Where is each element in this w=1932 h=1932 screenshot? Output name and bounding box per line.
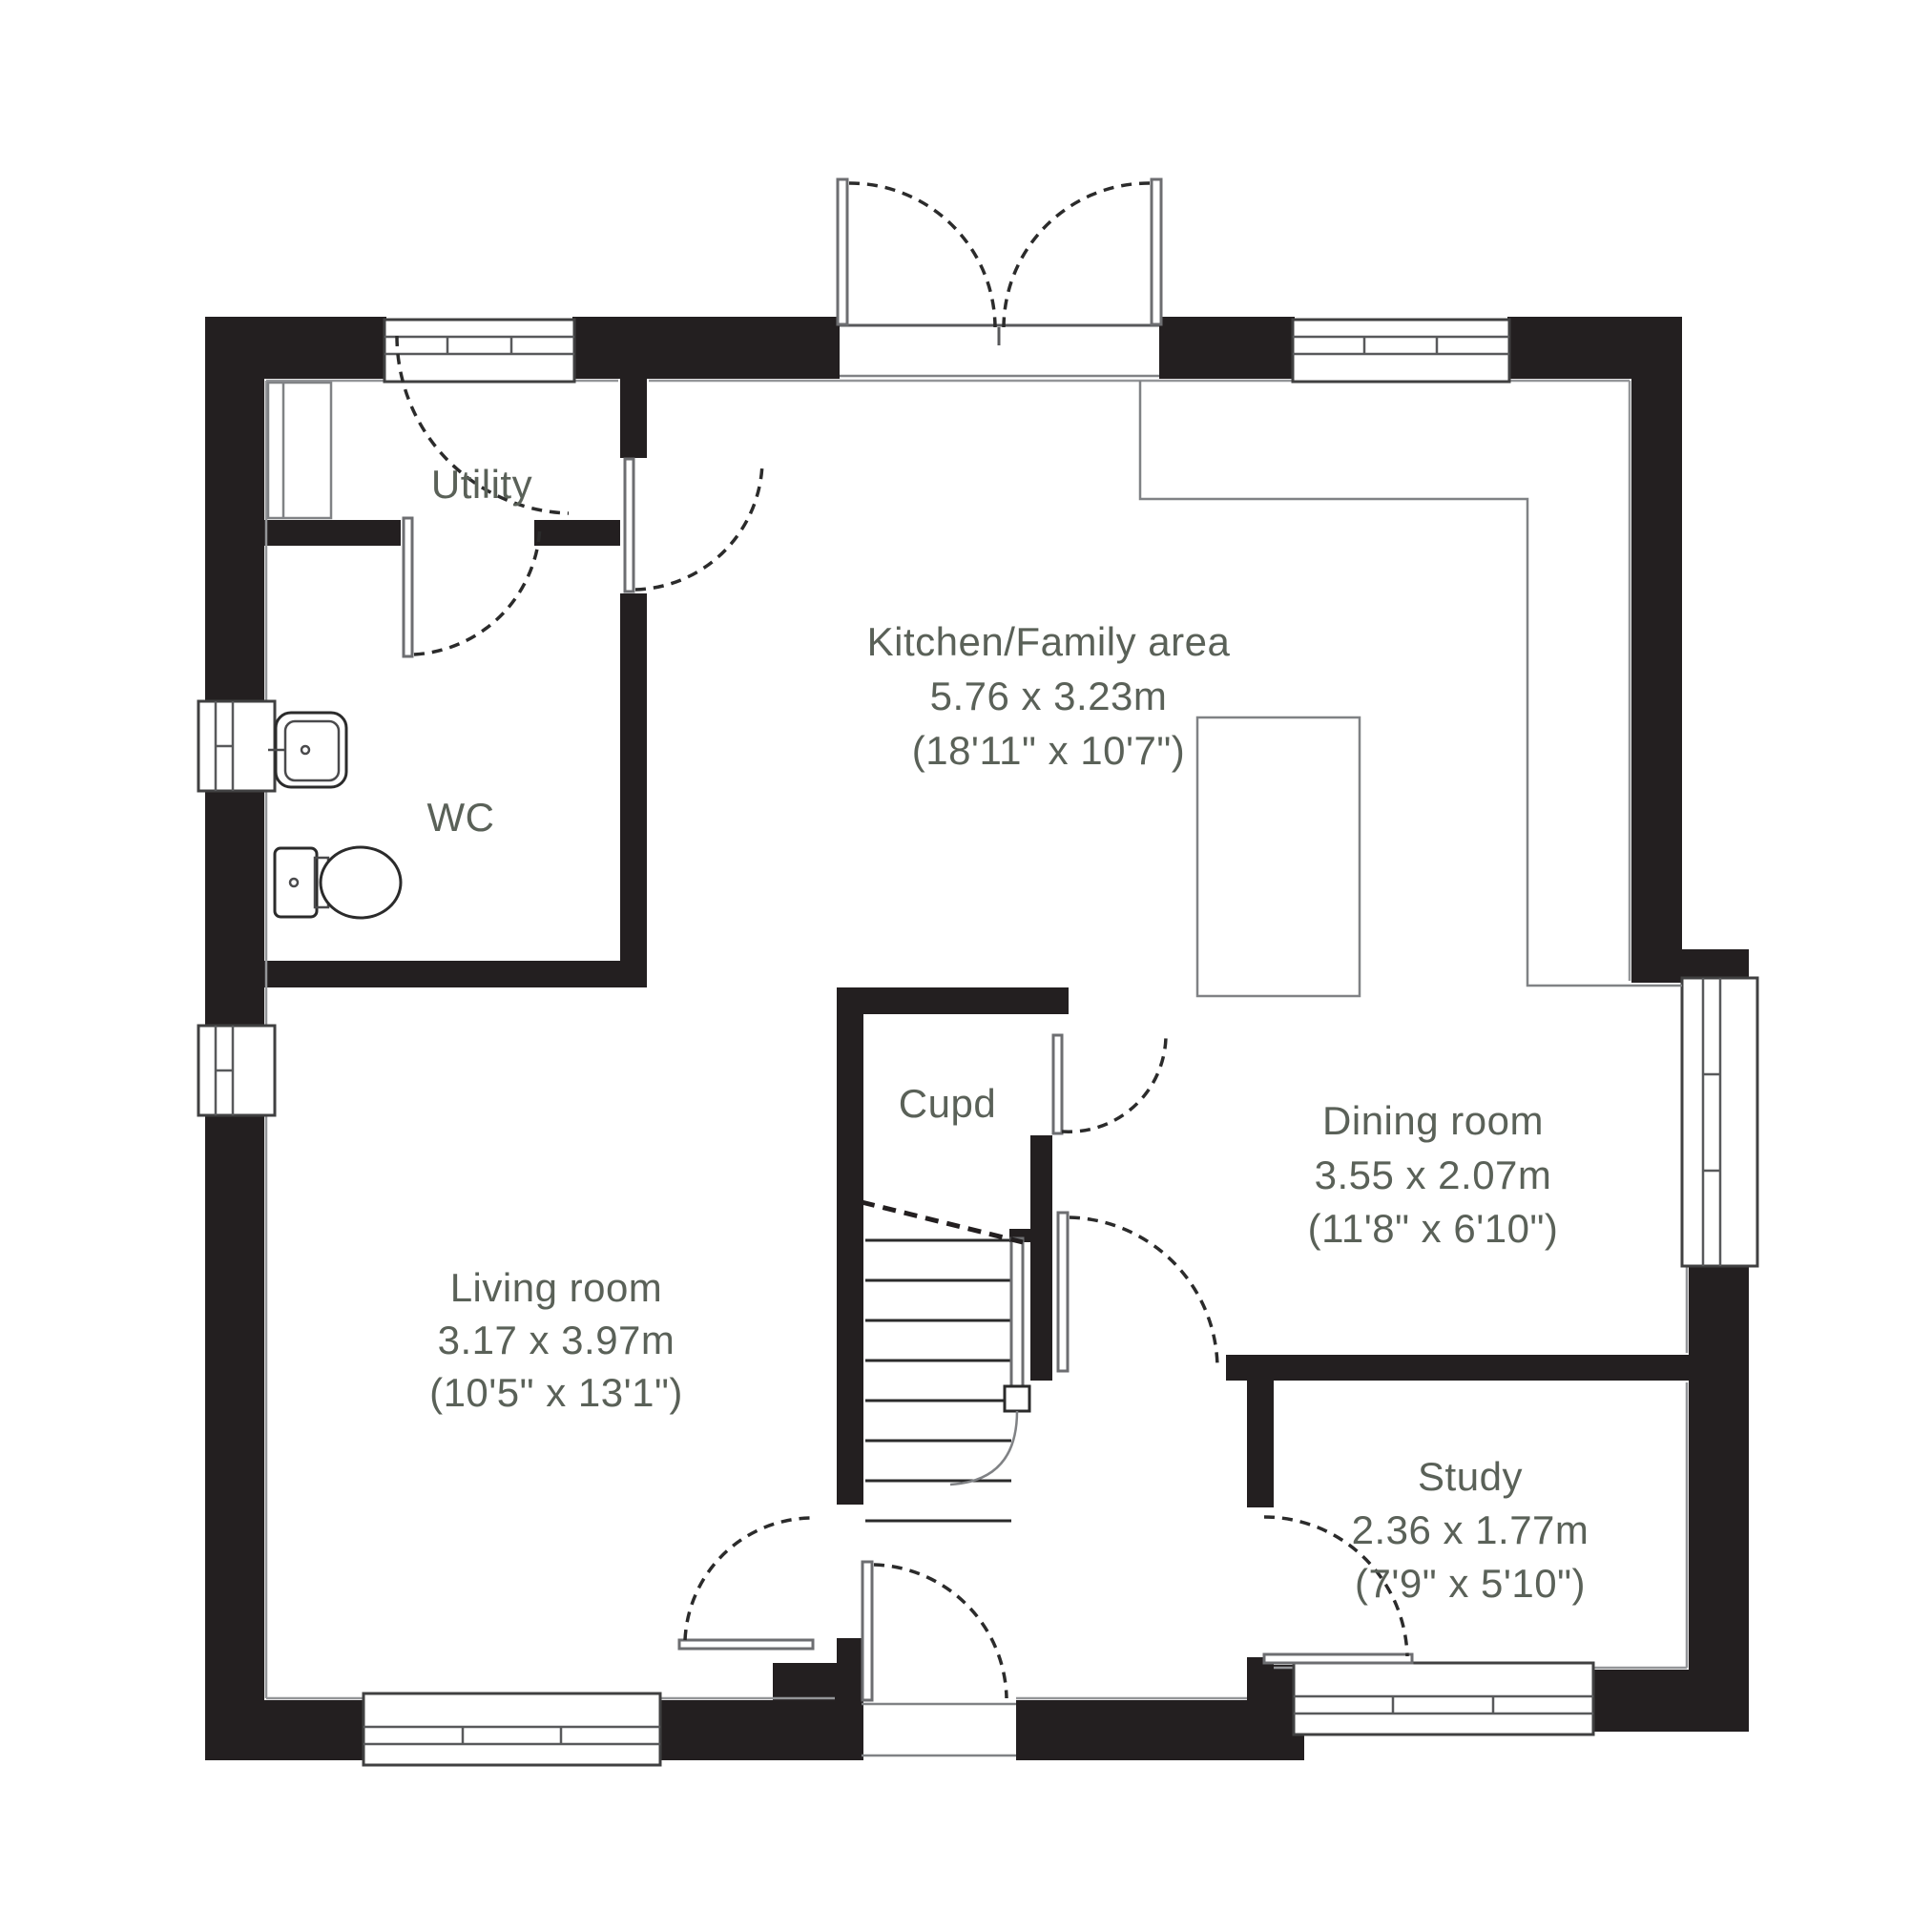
wc-basin [268, 713, 346, 787]
cupboard-door [1053, 1035, 1166, 1133]
living-room-door [679, 1518, 813, 1649]
window-kitchen-top [1293, 320, 1509, 382]
wc-door [404, 518, 540, 656]
interior-walls [205, 379, 1689, 1760]
dining-door [1058, 1213, 1217, 1371]
cupboard-label: Cupd [899, 1081, 996, 1126]
inner-wall-lines [266, 381, 1687, 1698]
window-dining-right [1682, 978, 1757, 1266]
window-living-left [198, 1026, 275, 1115]
window-living-bottom [364, 1693, 660, 1765]
utility-label: Utility [431, 462, 532, 507]
kitchen-dim-metric: 5.76 x 3.23m [930, 674, 1168, 718]
french-doors-kitchen [838, 179, 1161, 376]
kitchen-dim-imperial: (18'11" x 10'7") [912, 728, 1186, 773]
dining-label: Dining room [1322, 1098, 1544, 1143]
study-dim-imperial: (7'9" x 5'10") [1355, 1561, 1586, 1606]
window-wc-left [198, 701, 275, 791]
dining-dim-metric: 3.55 x 2.07m [1315, 1153, 1552, 1197]
window-utility-top [384, 320, 574, 382]
study-label: Study [1418, 1454, 1523, 1499]
window-study-bottom [1294, 1663, 1593, 1735]
wc-toilet [275, 847, 401, 918]
dining-dim-imperial: (11'8" x 6'10") [1308, 1206, 1559, 1251]
study-dim-metric: 2.36 x 1.77m [1352, 1507, 1589, 1552]
staircase [862, 1202, 1029, 1521]
kitchen-door [625, 459, 762, 592]
kitchen-island [1197, 717, 1360, 996]
utility-counter [268, 383, 331, 518]
kitchen-label: Kitchen/Family area [867, 619, 1231, 664]
wc-label: WC [427, 795, 495, 840]
living-dim-metric: 3.17 x 3.97m [438, 1318, 675, 1362]
room-labels: Utility WC Kitchen/Family area 5.76 x 3.… [427, 462, 1589, 1606]
stair-newel-post [1005, 1386, 1029, 1411]
stair-handrail [1011, 1238, 1023, 1389]
floor-plan-drawing: Utility WC Kitchen/Family area 5.76 x 3.… [0, 0, 1932, 1932]
stair-break-line [862, 1202, 1023, 1242]
front-door [862, 1562, 1016, 1755]
floor-plan-page: Utility WC Kitchen/Family area 5.76 x 3.… [0, 0, 1932, 1932]
kitchen-worktop [1140, 381, 1682, 986]
living-dim-imperial: (10'5" x 13'1") [429, 1370, 683, 1415]
living-label: Living room [450, 1265, 663, 1310]
